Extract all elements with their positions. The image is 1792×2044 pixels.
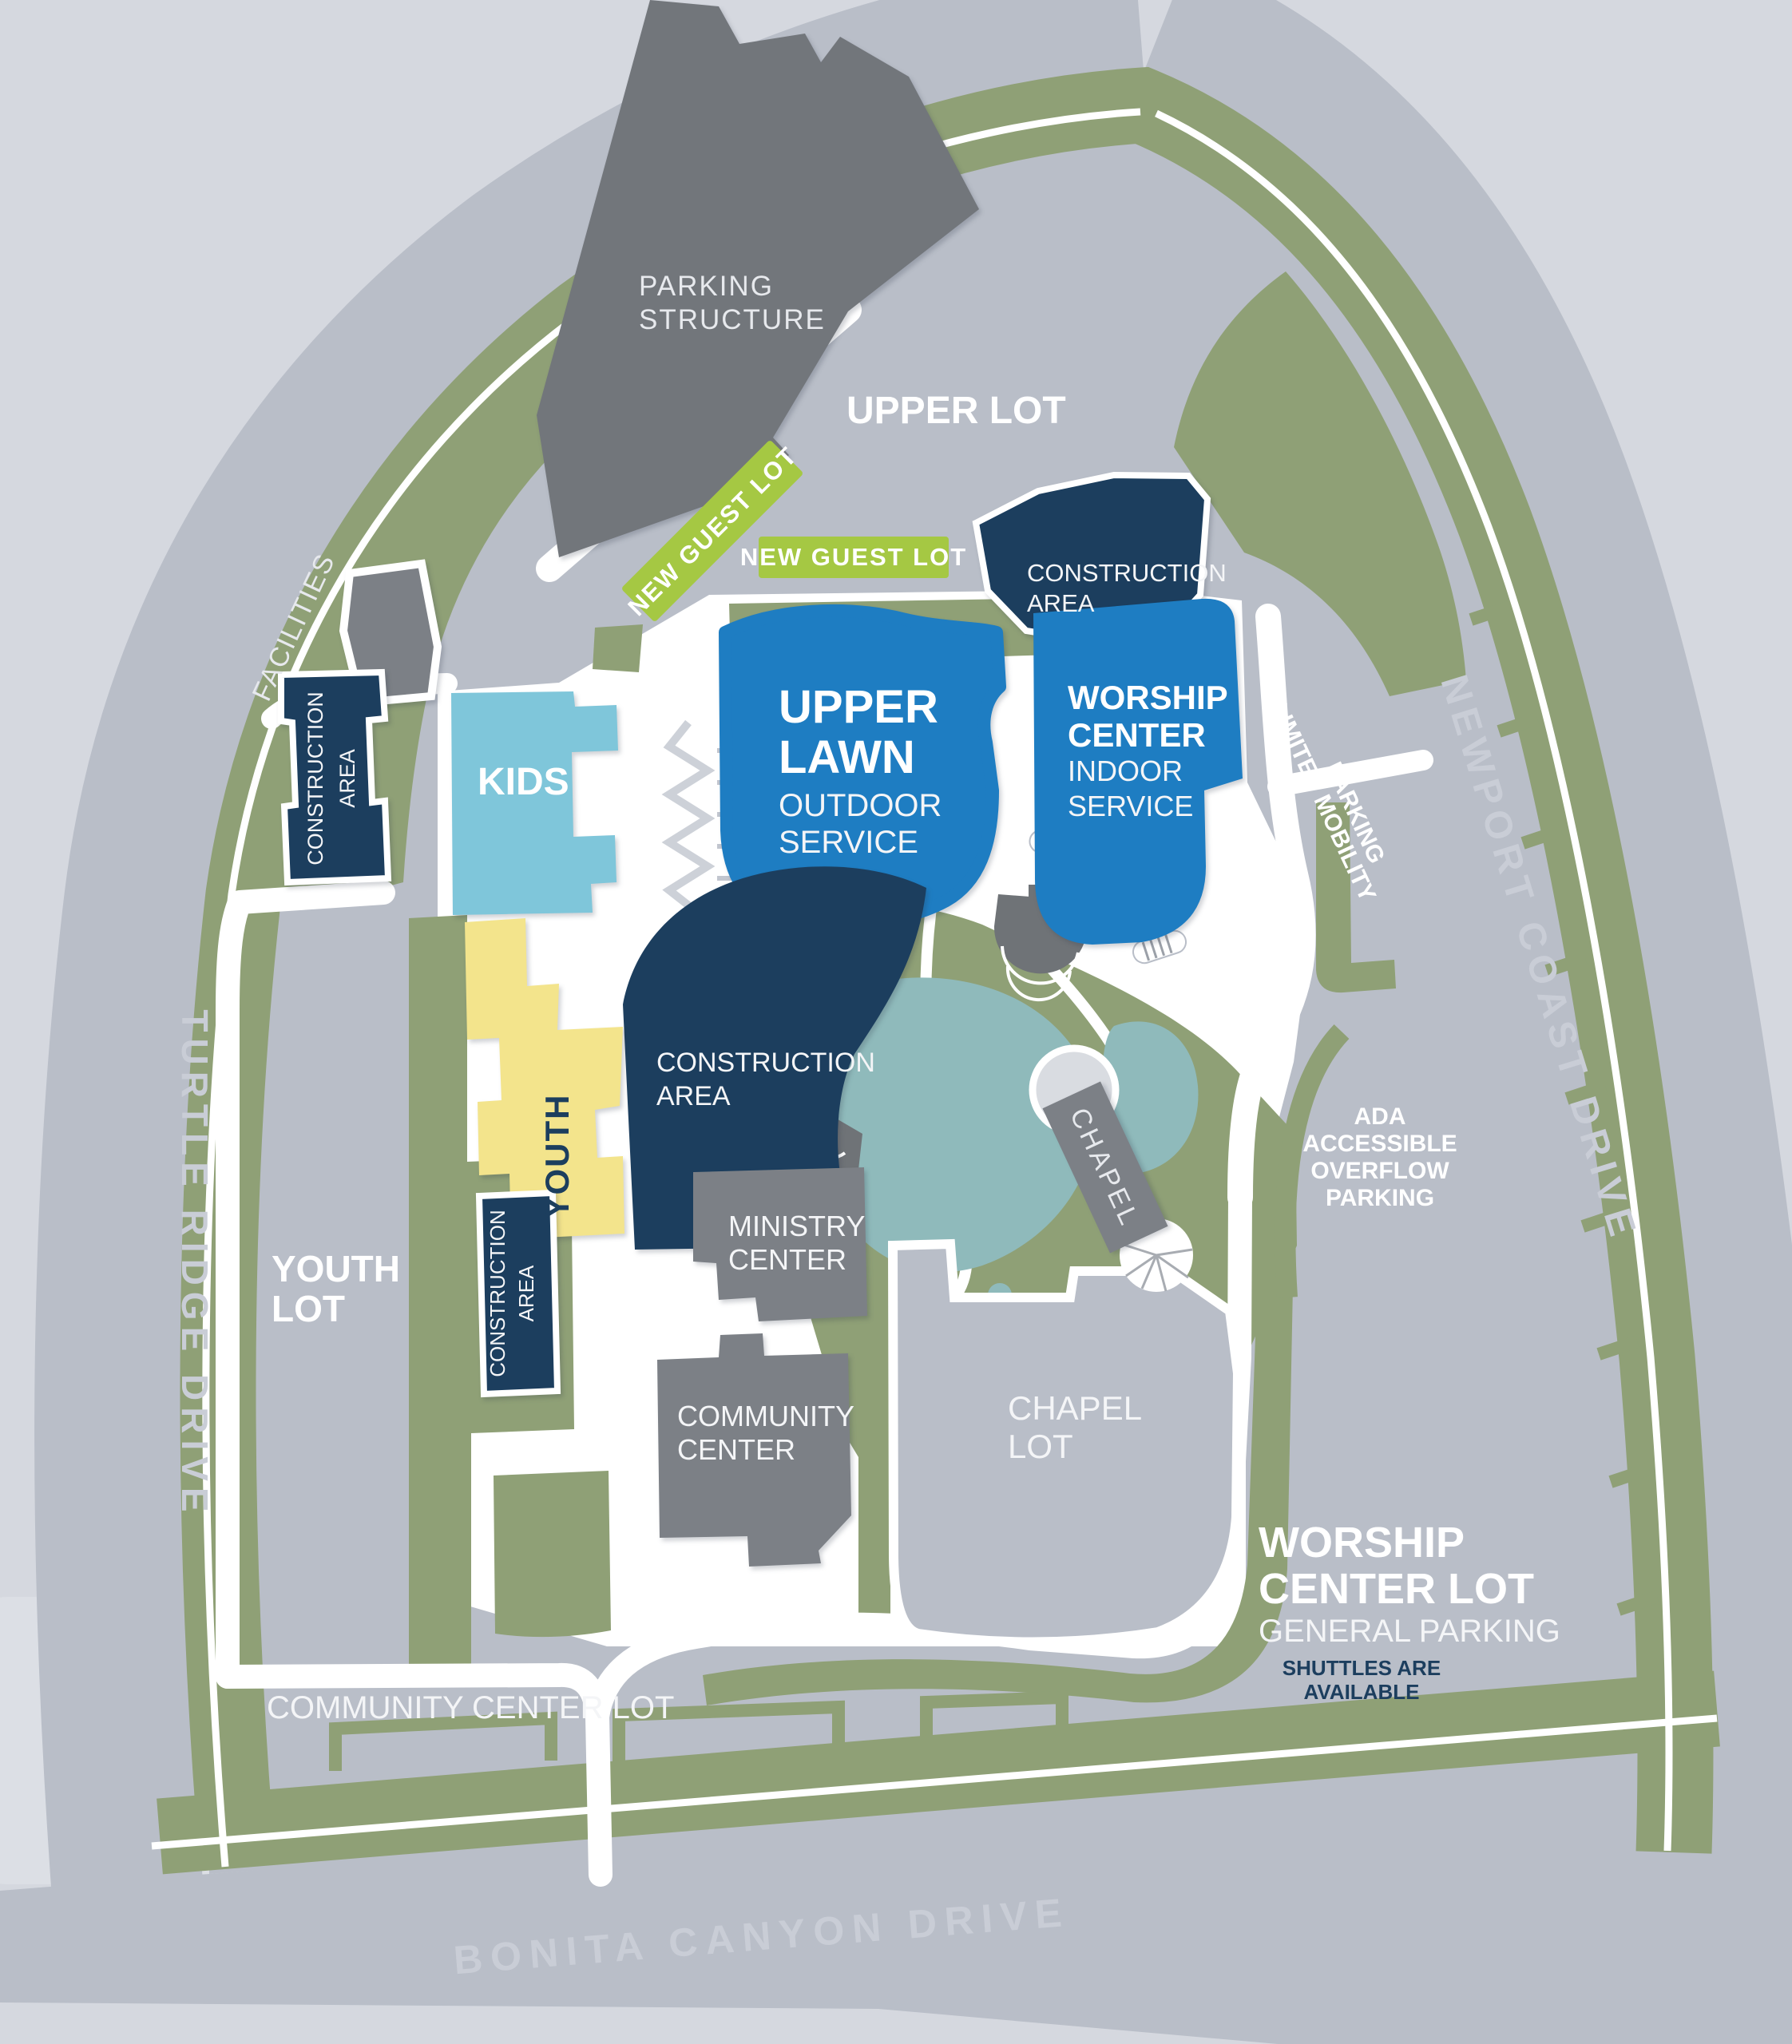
construction-center-line2: AREA bbox=[656, 1081, 731, 1111]
worship-center-sub-1: INDOOR bbox=[1068, 755, 1183, 787]
upper-lawn-sub-2: SERVICE bbox=[779, 825, 918, 860]
construction-area-nw bbox=[281, 672, 388, 882]
worship-center-label-1: WORSHIP bbox=[1068, 679, 1228, 716]
worship-center-sub-2: SERVICE bbox=[1068, 790, 1193, 822]
construction-nw-line2: AREA bbox=[335, 749, 359, 808]
ada-label-4: PARKING bbox=[1326, 1185, 1434, 1211]
construction-nw-line1: CONSTRUCTION bbox=[303, 691, 327, 866]
parking-structure-label-2: STRUCTURE bbox=[639, 304, 826, 335]
construction-center-line1: CONSTRUCTION bbox=[656, 1048, 875, 1078]
chapel-lot-label-2: LOT bbox=[1008, 1428, 1073, 1465]
worship-lot-label-2: CENTER LOT bbox=[1259, 1565, 1534, 1613]
ministry-center-label-1: MINISTRY bbox=[728, 1210, 865, 1242]
construction-sw-line2: AREA bbox=[514, 1265, 538, 1321]
youth-lot-label-2: LOT bbox=[272, 1288, 345, 1329]
youth-lot-label-1: YOUTH bbox=[272, 1248, 400, 1289]
community-lot-label: COMMUNITY CENTER LOT bbox=[267, 1690, 674, 1725]
community-center-label-1: COMMUNITY bbox=[677, 1400, 854, 1432]
worship-center-label-2: CENTER bbox=[1068, 716, 1206, 754]
new-guest-lot-label-horizontal: NEW GUEST LOT bbox=[740, 537, 967, 578]
construction-ne-line2: AREA bbox=[1027, 589, 1095, 617]
construction-ne-line1: CONSTRUCTION bbox=[1027, 559, 1227, 587]
green-upperlot-pocket bbox=[593, 624, 643, 672]
ada-label-3: OVERFLOW bbox=[1310, 1158, 1449, 1184]
campus-map: { "map": { "roads": { "turtle": "TURTLE … bbox=[0, 0, 1792, 2044]
road-label-turtle-ridge: TURTLE RIDGE DRIVE bbox=[174, 1009, 216, 1518]
youth-building-label: YOUTH bbox=[538, 1094, 576, 1219]
map-svg: CHAPEL NEW GUEST LOT NEW GUEST LOT TURTL… bbox=[0, 0, 1792, 2044]
worship-lot-sub: GENERAL PARKING bbox=[1259, 1614, 1560, 1649]
ada-label-1: ADA bbox=[1354, 1103, 1406, 1130]
upper-lot-label: UPPER LOT bbox=[846, 390, 1066, 432]
new-guest-lot-b-text: NEW GUEST LOT bbox=[740, 543, 967, 571]
green-pocket-sw bbox=[494, 1471, 611, 1637]
kids-label: KIDS bbox=[478, 761, 569, 803]
upper-lawn-label-1: UPPER bbox=[779, 681, 938, 733]
upper-lawn-sub-1: OUTDOOR bbox=[779, 788, 942, 823]
construction-sw-line1: CONSTRUCTION bbox=[486, 1210, 509, 1377]
parking-structure-label-1: PARKING bbox=[639, 271, 774, 302]
worship-lot-note-2: AVAILABLE bbox=[1304, 1680, 1420, 1704]
community-center-label-2: CENTER bbox=[677, 1433, 795, 1466]
ada-label-2: ACCESSIBLE bbox=[1302, 1131, 1457, 1157]
upper-lawn-label-2: LAWN bbox=[779, 731, 915, 783]
worship-lot-label-1: WORSHIP bbox=[1259, 1519, 1465, 1567]
worship-lot-note-1: SHUTTLES ARE bbox=[1283, 1656, 1441, 1680]
chapel-lot-label-1: CHAPEL bbox=[1008, 1389, 1142, 1427]
ministry-center-label-2: CENTER bbox=[728, 1243, 846, 1276]
